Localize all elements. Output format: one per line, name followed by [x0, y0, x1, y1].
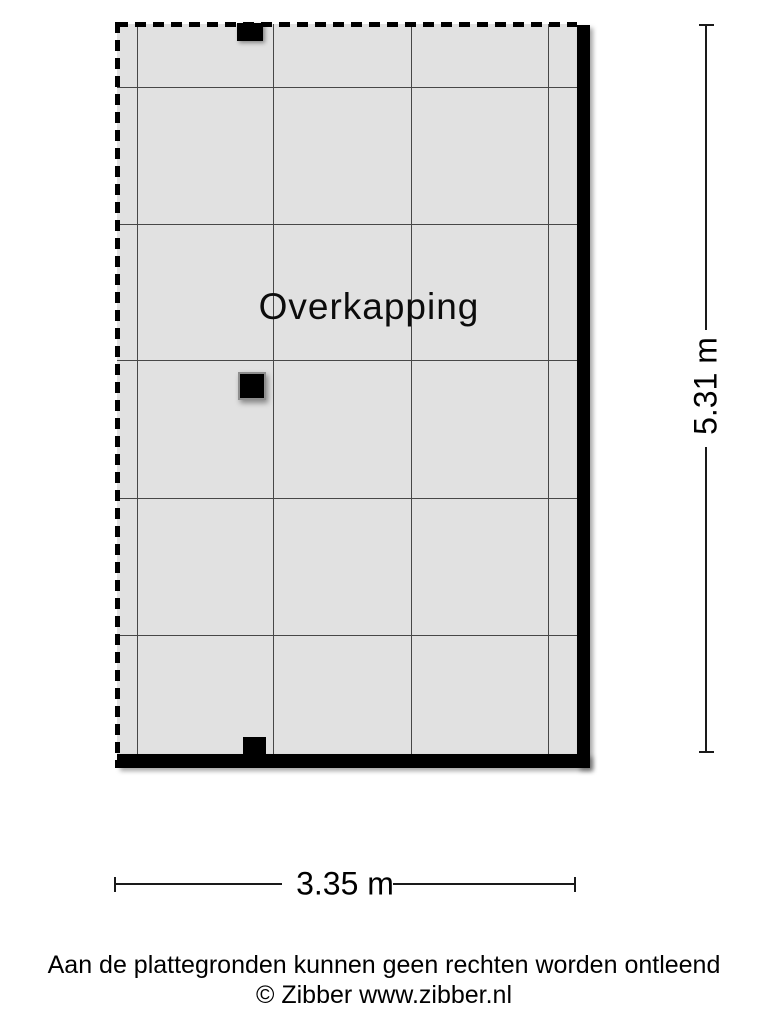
- boundary-left-dashed: [115, 22, 120, 768]
- footer: Aan de plattegronden kunnen geen rechten…: [0, 950, 768, 1010]
- post-top-edge: [237, 23, 263, 41]
- grid-line-horizontal: [117, 635, 577, 636]
- room-label: Overkapping: [259, 286, 480, 328]
- floorplan-page: Overkapping 5.31 m 3.35 m Aan de platteg…: [0, 0, 768, 1024]
- wall-bottom: [117, 754, 590, 768]
- post-center: [238, 372, 266, 400]
- boundary-top-dashed: [117, 22, 577, 27]
- grid-line-horizontal: [117, 224, 577, 225]
- dimension-line: [705, 25, 707, 330]
- grid-line-vertical: [411, 24, 412, 754]
- grid-line-vertical: [137, 24, 138, 754]
- floor-area: [117, 24, 577, 754]
- dimension-height-label: 5.31 m: [688, 337, 725, 435]
- disclaimer-text: Aan de plattegronden kunnen geen rechten…: [0, 950, 768, 980]
- grid-line-horizontal: [117, 360, 577, 361]
- dimension-line: [115, 883, 282, 885]
- dimension-width-label: 3.35 m: [296, 866, 394, 903]
- wall-right: [577, 25, 590, 768]
- grid-line-horizontal: [117, 87, 577, 88]
- copyright-text: © Zibber www.zibber.nl: [0, 980, 768, 1010]
- post-bottom-edge: [243, 737, 266, 754]
- dimension-line: [393, 883, 575, 885]
- grid-line-vertical: [273, 24, 274, 754]
- dimension-tick: [699, 751, 714, 753]
- dimension-tick: [699, 24, 714, 26]
- dimension-tick: [574, 877, 576, 892]
- grid-line-horizontal: [117, 498, 577, 499]
- dimension-line: [705, 447, 707, 752]
- grid-line-vertical: [548, 24, 549, 754]
- dimension-tick: [114, 877, 116, 892]
